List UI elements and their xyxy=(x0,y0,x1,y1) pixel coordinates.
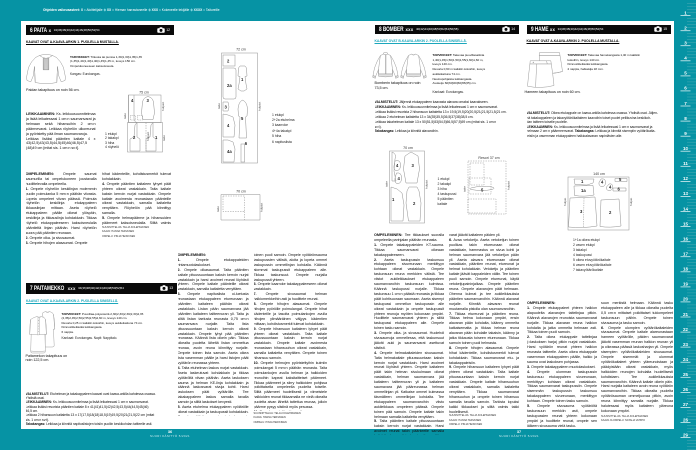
svg-text:3: 3 xyxy=(412,163,415,168)
svg-text:taite: taite xyxy=(217,103,221,109)
svg-text:3: 3 xyxy=(580,209,583,214)
svg-text:Resori 37 cm: Resori 37 cm xyxy=(478,156,499,160)
svg-text:16: 16 xyxy=(683,237,689,242)
svg-text:13: 13 xyxy=(683,191,689,196)
svg-text:1a: 1a xyxy=(581,188,586,193)
svg-text:taite: taite xyxy=(463,186,467,192)
svg-text:5: 5 xyxy=(241,116,244,121)
svg-text:hulpiot: hulpiot xyxy=(146,132,150,141)
svg-text:22: 22 xyxy=(683,327,689,332)
svg-text:23: 23 xyxy=(683,342,689,347)
svg-text:hulpiot: hulpiot xyxy=(258,102,262,111)
svg-text:6: 6 xyxy=(245,141,248,146)
svg-text:9: 9 xyxy=(684,131,687,136)
svg-text:10: 10 xyxy=(683,146,689,151)
svg-text:hulpiot: hulpiot xyxy=(161,102,165,111)
svg-text:25: 25 xyxy=(683,372,689,377)
svg-text:4: 4 xyxy=(227,123,230,128)
svg-text:3: 3 xyxy=(684,41,687,46)
svg-text:3: 3 xyxy=(225,105,228,110)
svg-text:14: 14 xyxy=(683,206,689,211)
svg-text:taite: taite xyxy=(162,135,166,141)
svg-text:12: 12 xyxy=(683,176,689,181)
svg-text:2: 2 xyxy=(227,59,230,64)
svg-text:72 cm: 72 cm xyxy=(236,48,246,52)
svg-text:4: 4 xyxy=(601,180,604,185)
svg-text:2a: 2a xyxy=(227,83,232,88)
svg-text:70 cm: 70 cm xyxy=(236,190,246,194)
svg-text:1: 1 xyxy=(241,77,244,82)
svg-text:8: 8 xyxy=(684,116,687,121)
svg-text:21: 21 xyxy=(683,312,689,317)
svg-text:27: 27 xyxy=(683,402,689,407)
svg-text:taite: taite xyxy=(216,206,220,212)
svg-text:5: 5 xyxy=(684,71,687,76)
svg-text:75 cm: 75 cm xyxy=(139,91,149,95)
svg-text:18: 18 xyxy=(683,267,689,272)
svg-text:5: 5 xyxy=(481,188,484,193)
svg-text:2: 2 xyxy=(609,210,612,215)
svg-text:29: 29 xyxy=(683,432,689,437)
svg-text:1: 1 xyxy=(155,135,158,140)
svg-text:28: 28 xyxy=(683,417,689,422)
svg-text:4: 4 xyxy=(131,98,134,103)
svg-text:20: 20 xyxy=(683,297,689,302)
svg-text:6: 6 xyxy=(684,86,687,91)
svg-text:taite: taite xyxy=(123,113,127,119)
svg-text:1: 1 xyxy=(684,10,687,15)
svg-text:taite: taite xyxy=(385,181,389,187)
svg-text:2: 2 xyxy=(684,26,687,31)
svg-text:7: 7 xyxy=(684,101,687,106)
svg-text:17: 17 xyxy=(683,252,689,257)
svg-text:19: 19 xyxy=(683,282,689,287)
svg-text:hulpiot: hulpiot xyxy=(507,181,511,190)
svg-text:140 cm: 140 cm xyxy=(593,172,605,176)
svg-text:4a: 4a xyxy=(227,149,232,154)
svg-text:2: 2 xyxy=(133,135,136,140)
svg-text:4: 4 xyxy=(609,185,612,190)
svg-text:26: 26 xyxy=(683,387,689,392)
svg-text:2: 2 xyxy=(413,201,416,206)
svg-text:15: 15 xyxy=(683,221,689,226)
svg-text:hulpiot: hulpiot xyxy=(260,203,264,212)
svg-text:70 cm: 70 cm xyxy=(403,146,413,150)
svg-text:1: 1 xyxy=(392,197,395,202)
svg-text:4: 4 xyxy=(398,176,401,181)
svg-text:4: 4 xyxy=(396,163,399,168)
svg-text:hulpio: hulpio xyxy=(563,197,567,206)
svg-text:hulpio: hulpio xyxy=(629,197,633,206)
svg-text:1: 1 xyxy=(581,179,584,184)
svg-text:4: 4 xyxy=(684,56,687,61)
svg-text:24: 24 xyxy=(683,357,689,362)
svg-text:11: 11 xyxy=(683,161,688,166)
svg-text:hulpiot: hulpiot xyxy=(425,180,429,189)
svg-text:3: 3 xyxy=(147,98,150,103)
